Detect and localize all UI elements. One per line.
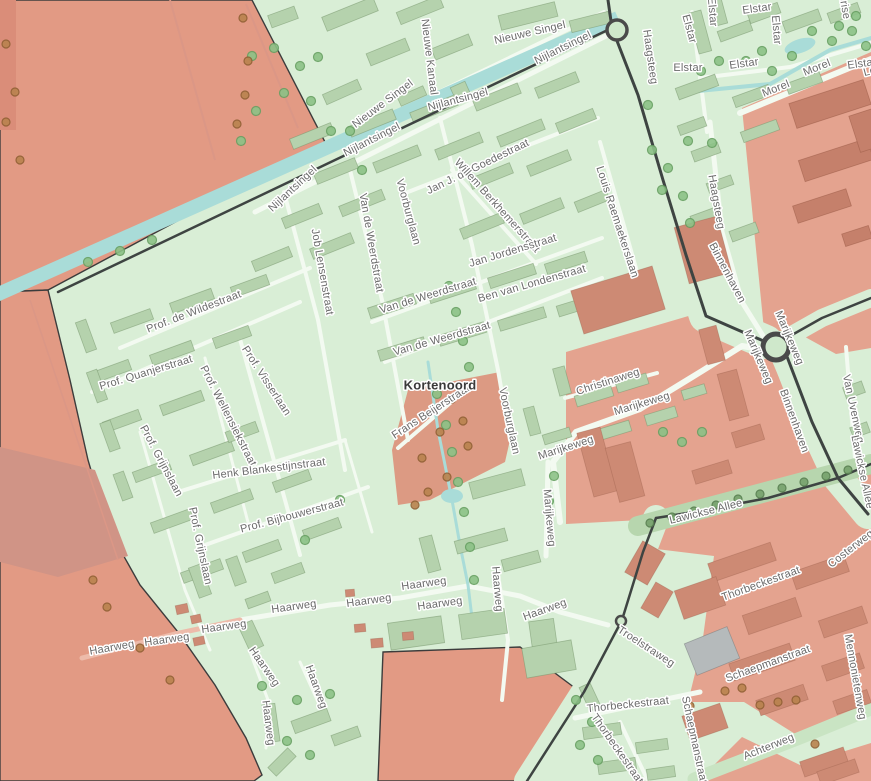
green-tree-icon (658, 186, 667, 195)
green-tree-icon (283, 737, 292, 746)
brown-tree-icon (233, 120, 241, 128)
green-tree-icon (572, 696, 581, 705)
green-tree-icon (788, 52, 797, 61)
green-tree-icon (346, 127, 355, 136)
brown-tree-icon (136, 644, 144, 652)
green-tree-icon (715, 57, 724, 66)
brown-tree-icon (774, 698, 782, 706)
green-tree-icon (306, 751, 315, 760)
brown-tree-icon (811, 740, 819, 748)
green-tree-icon (466, 543, 475, 552)
green-tree-icon (327, 127, 336, 136)
brown-tree-icon (418, 454, 426, 462)
green-tree-icon (454, 478, 463, 487)
brown-tree-icon (459, 417, 467, 425)
brown-tree-icon (756, 701, 764, 709)
brown-tree-icon (11, 88, 19, 96)
olive-tree-icon (822, 472, 830, 480)
brown-tree-icon (424, 488, 432, 496)
green-tree-icon (237, 137, 246, 146)
green-tree-icon (686, 219, 695, 228)
green-tree-icon (116, 247, 125, 256)
brown-tree-icon (2, 40, 10, 48)
olive-tree-icon (800, 478, 808, 486)
green-tree-icon (550, 472, 559, 481)
brown-tree-icon (436, 428, 444, 436)
green-tree-icon (758, 47, 767, 56)
green-tree-icon (252, 107, 261, 116)
green-tree-icon (835, 22, 844, 31)
green-tree-icon (258, 682, 267, 691)
street-label: Elstar (769, 15, 784, 45)
green-tree-icon (576, 741, 585, 750)
green-tree-icon (808, 27, 817, 36)
zone-polygon (0, 0, 16, 130)
building (371, 638, 384, 648)
green-tree-icon (594, 756, 603, 765)
brown-tree-icon (166, 676, 174, 684)
olive-tree-icon (756, 490, 764, 498)
building (345, 589, 355, 597)
map-canvas: Nieuwe SingelNieuwe SingelNieuwe KanaalN… (0, 0, 871, 781)
building (193, 636, 205, 646)
building (175, 603, 189, 614)
green-tree-icon (664, 164, 673, 173)
green-tree-icon (307, 97, 316, 106)
olive-tree-icon (778, 484, 786, 492)
green-tree-icon (848, 27, 857, 36)
green-tree-icon (862, 42, 871, 51)
green-tree-icon (708, 139, 717, 148)
green-tree-icon (452, 308, 461, 317)
green-tree-icon (296, 62, 305, 71)
brown-tree-icon (241, 91, 249, 99)
brown-tree-icon (16, 156, 24, 164)
green-tree-icon (314, 53, 323, 62)
roundabout-icon (607, 20, 627, 40)
brown-tree-icon (443, 473, 451, 481)
brown-tree-icon (411, 501, 419, 509)
olive-tree-icon (646, 519, 654, 527)
green-tree-icon (293, 696, 302, 705)
olive-tree-icon (844, 466, 852, 474)
green-tree-icon (470, 576, 479, 585)
neighborhood-label: Kortenoord (404, 377, 477, 392)
green-tree-icon (648, 146, 657, 155)
green-tree-icon (678, 438, 687, 447)
green-tree-icon (465, 363, 474, 372)
green-tree-icon (358, 166, 367, 175)
green-tree-icon (301, 536, 310, 545)
green-tree-icon (448, 448, 457, 457)
brown-tree-icon (738, 684, 746, 692)
map-viewport[interactable]: Nieuwe SingelNieuwe SingelNieuwe KanaalN… (0, 0, 871, 781)
green-tree-icon (644, 101, 653, 110)
brown-tree-icon (89, 576, 97, 584)
green-tree-icon (659, 428, 668, 437)
building (354, 624, 366, 633)
brown-tree-icon (464, 442, 472, 450)
brown-tree-icon (239, 14, 247, 22)
pond (441, 489, 463, 503)
building (402, 632, 414, 641)
green-tree-icon (698, 428, 707, 437)
green-tree-icon (684, 137, 693, 146)
green-tree-icon (280, 89, 289, 98)
green-tree-icon (270, 44, 279, 53)
street-label: Elstar (673, 62, 702, 74)
green-tree-icon (84, 258, 93, 267)
green-tree-icon (460, 508, 469, 517)
green-tree-icon (828, 37, 837, 46)
brown-tree-icon (721, 687, 729, 695)
green-tree-icon (679, 192, 688, 201)
brown-tree-icon (103, 603, 111, 611)
brown-tree-icon (244, 57, 252, 65)
building (190, 614, 201, 624)
green-tree-icon (148, 236, 157, 245)
green-tree-icon (768, 67, 777, 76)
brown-tree-icon (792, 696, 800, 704)
brown-tree-icon (2, 118, 10, 126)
green-tree-icon (442, 421, 451, 430)
